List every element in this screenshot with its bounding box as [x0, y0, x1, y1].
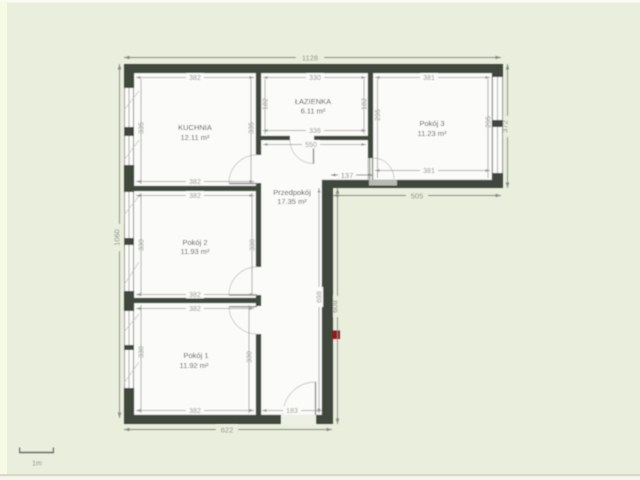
svg-text:622: 622 — [221, 426, 234, 435]
svg-text:295: 295 — [375, 109, 382, 121]
svg-text:295: 295 — [486, 116, 493, 128]
svg-text:382: 382 — [189, 408, 201, 415]
svg-text:330: 330 — [247, 351, 254, 363]
svg-text:330: 330 — [139, 346, 146, 358]
svg-text:1128: 1128 — [302, 54, 318, 63]
svg-text:ŁAZIENKA: ŁAZIENKA — [295, 97, 331, 106]
svg-text:182: 182 — [263, 98, 270, 110]
svg-text:381: 381 — [423, 168, 435, 175]
svg-text:550: 550 — [305, 142, 317, 149]
svg-text:382: 382 — [189, 306, 201, 313]
svg-text:330: 330 — [139, 239, 146, 251]
svg-text:12.11 m²: 12.11 m² — [180, 133, 210, 142]
svg-text:KUCHNIA: KUCHNIA — [178, 123, 212, 132]
svg-text:382: 382 — [189, 179, 201, 186]
svg-text:382: 382 — [189, 75, 201, 82]
svg-text:6.11 m²: 6.11 m² — [301, 107, 326, 116]
svg-text:Przedpokój: Przedpokój — [273, 188, 311, 197]
svg-text:Pokój 3: Pokój 3 — [419, 119, 444, 128]
svg-text:330: 330 — [309, 75, 321, 82]
svg-text:698: 698 — [317, 291, 324, 303]
svg-text:382: 382 — [189, 292, 201, 299]
svg-text:11.92 m²: 11.92 m² — [179, 361, 209, 370]
svg-text:608: 608 — [331, 300, 340, 313]
svg-text:372: 372 — [501, 120, 510, 133]
svg-text:183: 183 — [286, 408, 298, 415]
svg-text:336: 336 — [309, 128, 321, 135]
svg-text:381: 381 — [423, 75, 435, 82]
svg-text:Pokój 1: Pokój 1 — [183, 351, 208, 360]
svg-text:1060: 1060 — [113, 229, 122, 246]
svg-text:11.93 m²: 11.93 m² — [180, 247, 210, 256]
svg-text:335: 335 — [249, 122, 256, 134]
svg-text:382: 382 — [189, 193, 201, 200]
svg-text:Pokój 2: Pokój 2 — [182, 238, 207, 247]
svg-text:1m: 1m — [32, 461, 42, 468]
svg-text:335: 335 — [139, 122, 146, 134]
svg-text:330: 330 — [250, 239, 257, 251]
svg-text:137: 137 — [341, 171, 354, 180]
svg-text:17.35 m²: 17.35 m² — [277, 197, 307, 206]
svg-text:11.23 m²: 11.23 m² — [417, 129, 447, 138]
svg-text:505: 505 — [411, 192, 424, 201]
svg-text:182: 182 — [362, 98, 369, 110]
